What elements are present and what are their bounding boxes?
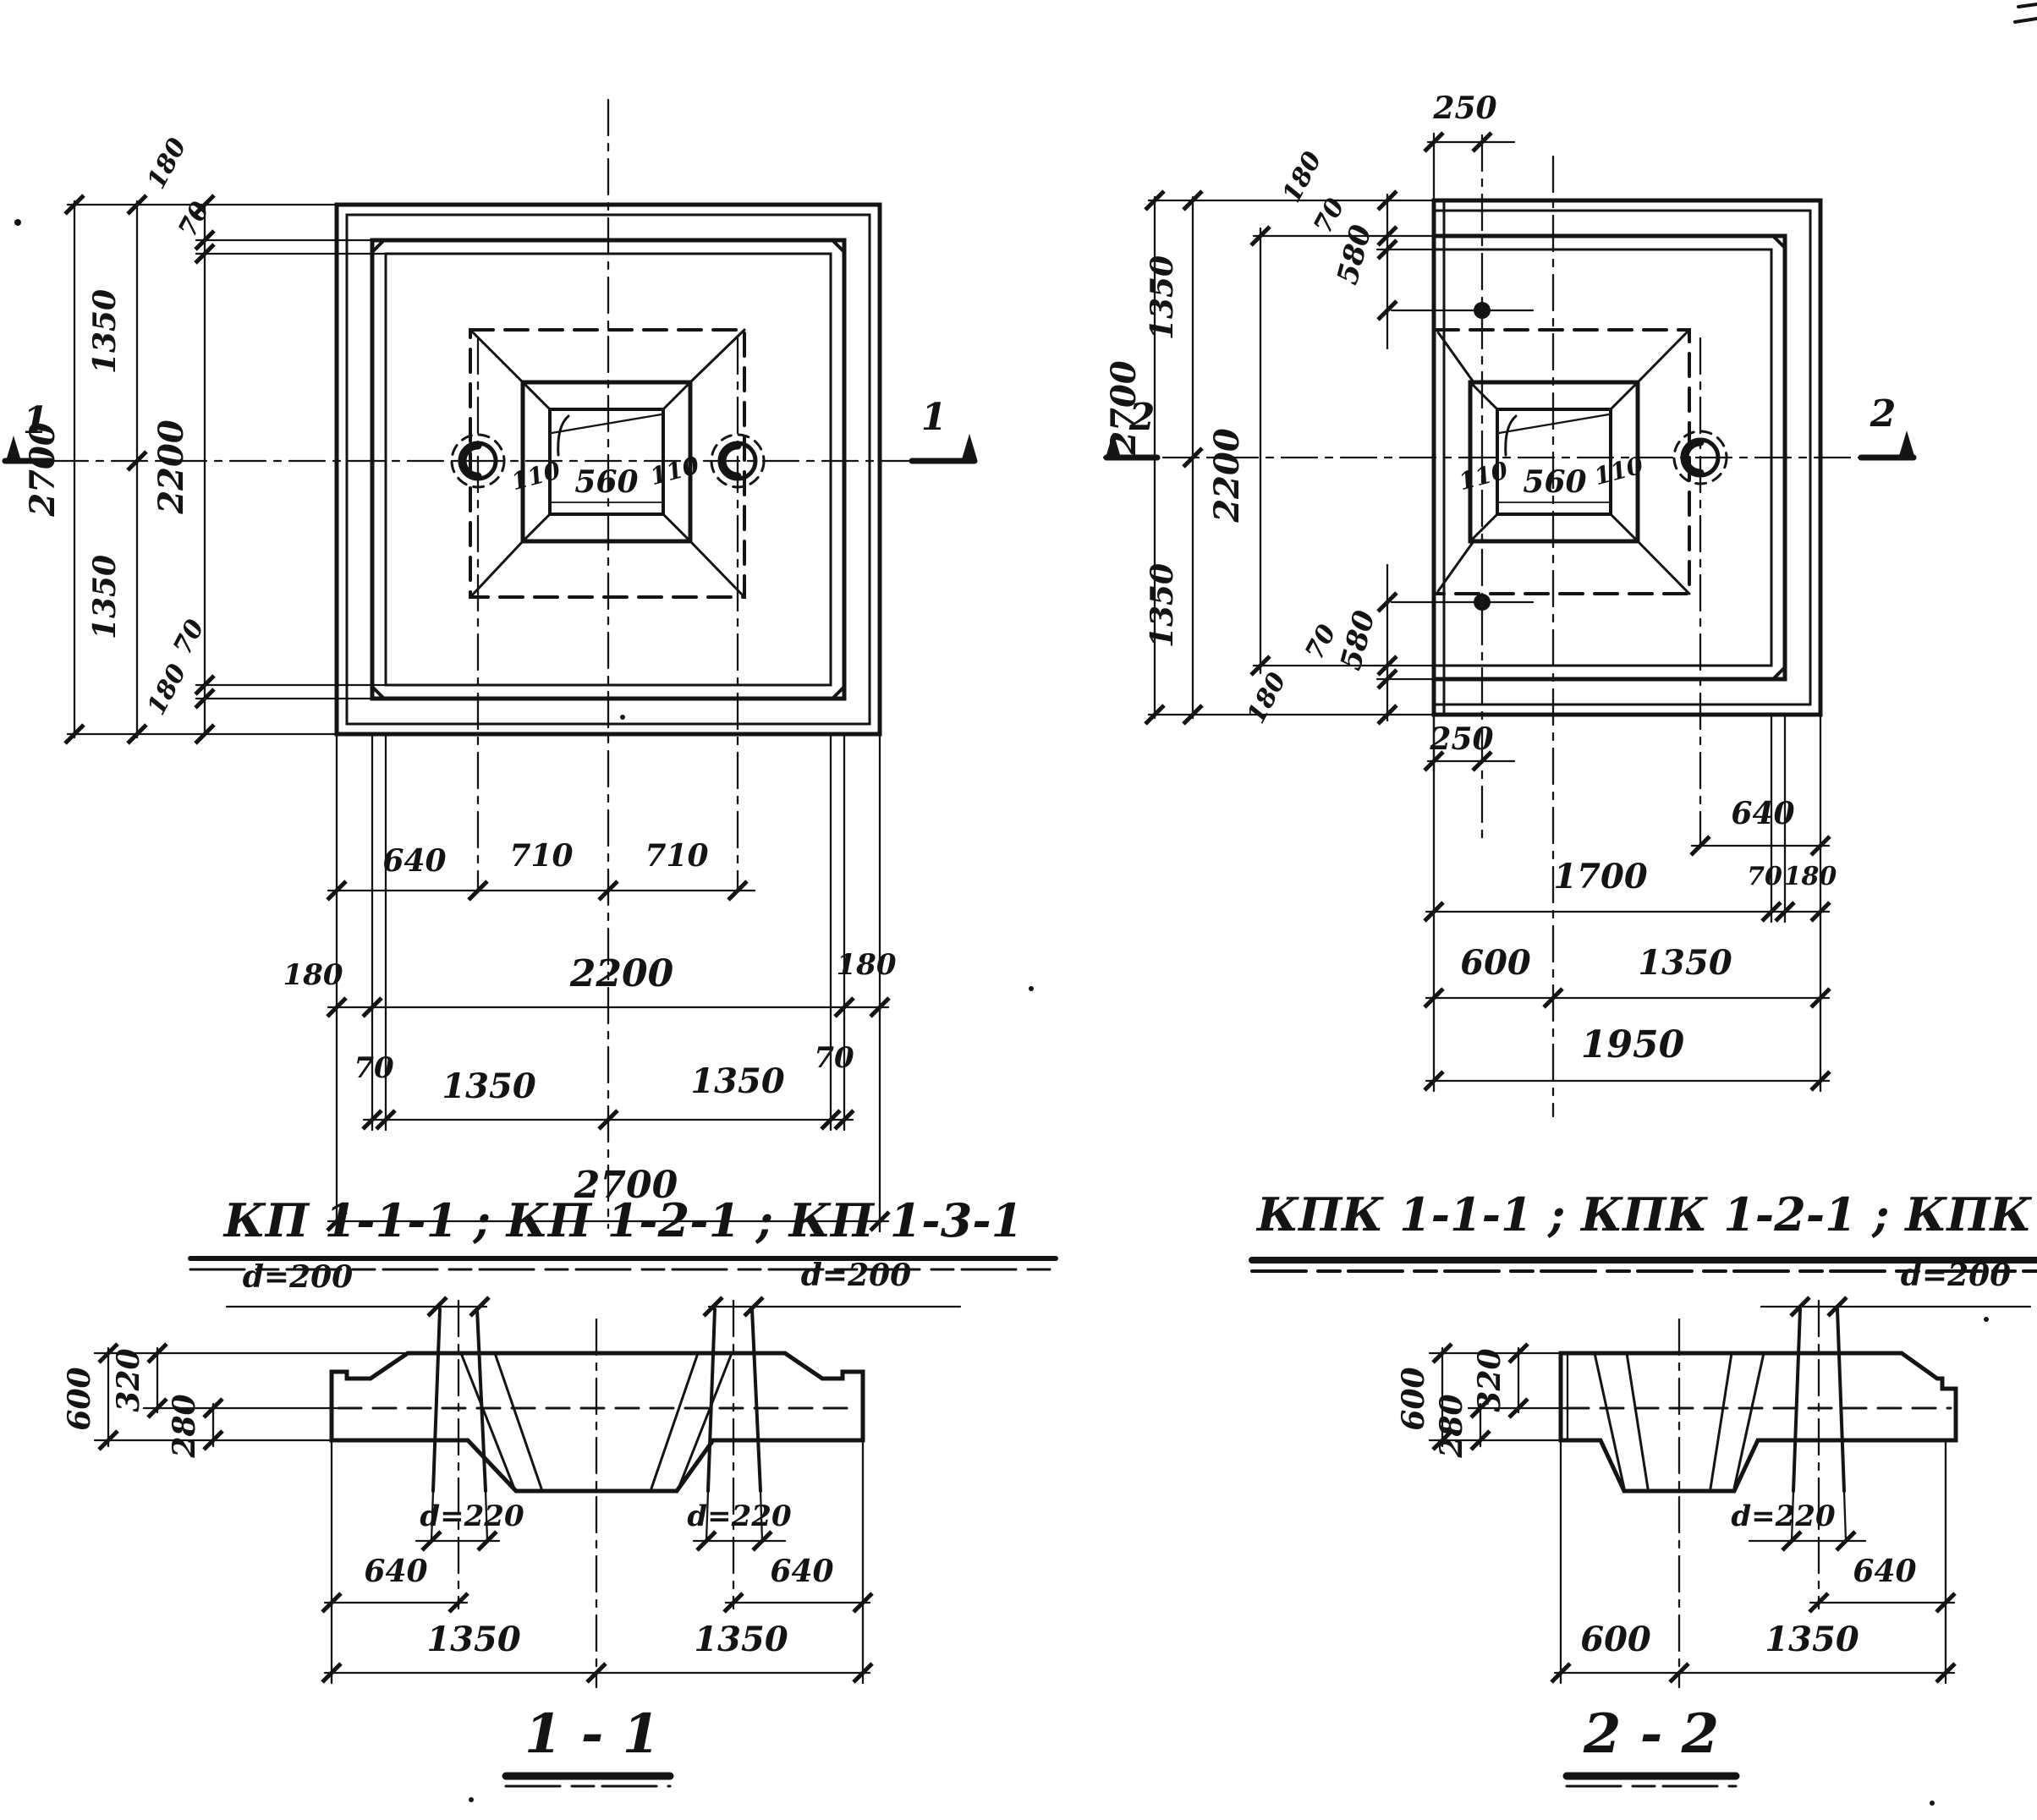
dim-inner-height: 2200	[151, 419, 191, 514]
section-title: 2 - 2	[1583, 1702, 1719, 1766]
section-marker-label: 2	[1870, 392, 1897, 436]
dim-hole-to-edge: 640	[1731, 796, 1794, 831]
pipe-top-dia-right: d=200	[801, 1258, 911, 1293]
dim-top-height: 320	[111, 1348, 146, 1412]
dim-bottom-height: 280	[167, 1394, 202, 1458]
dim-edge-l: 180	[283, 958, 343, 992]
dim-half-top: 1350	[1145, 255, 1180, 340]
section-marker-label: 2	[1128, 396, 1156, 439]
dim-edge: 180	[1784, 862, 1837, 891]
plan-kpk-dim-250-bottom: 250	[1425, 715, 1514, 771]
section-1-1-d200: d=200 d=200	[227, 1258, 960, 1316]
dim-socket-inner: 560	[574, 464, 638, 500]
section-2-2-dims-left: 600 320 280	[1396, 1344, 1566, 1459]
pipe-bottom-dia-left: d=220	[420, 1499, 524, 1533]
plan-kp-centerlines	[52, 100, 912, 1228]
dim-edge-to-hole: 640	[382, 843, 446, 879]
plan-kpk-dim-250-top: 250	[1425, 90, 1514, 200]
section-1-1-d220: d=220 d=220	[416, 1499, 792, 1550]
dim-socket-wall-right: 110	[647, 451, 702, 491]
dim-half: 1350	[1638, 943, 1732, 983]
pipe-top-dia-left: d=200	[243, 1259, 353, 1295]
scan-artifacts	[14, 4, 2037, 1806]
section-title: 1 - 1	[524, 1702, 660, 1766]
section-1-1-title: 1 - 1	[506, 1702, 670, 1786]
section-2-2-d200: d=200	[1761, 1258, 2030, 1316]
title-kp: КП 1-1-1 ; КП 1-2-1 ; КП 1-3-1	[222, 1193, 1024, 1247]
plan-kpk-anchor-top	[1392, 302, 1533, 319]
pipe-bottom-dia-right: d=220	[687, 1499, 792, 1533]
dim-hole-to-axis-l: 710	[509, 838, 573, 874]
dim-socket-wall-left: 110	[1456, 456, 1511, 496]
plan-kp-dims-left: 2700 1350 1350 2200 180 70 70 180	[23, 134, 386, 743]
section-marker-label: 1	[921, 396, 947, 439]
pipe-bottom-dia: d=220	[1731, 1499, 1836, 1533]
dim-inner-height: 2200	[1207, 428, 1247, 523]
section-1-1: d=200 d=200 600 320 280 d=220 d=220 640	[62, 1258, 960, 1786]
section-marker-1-right: 1	[912, 396, 977, 461]
dim-edge-to-pipe-l: 640	[364, 1554, 427, 1589]
titles: КП 1-1-1 ; КП 1-2-1 ; КП 1-3-1 КПК 1-1-1…	[190, 1187, 2037, 1271]
plan-kpk-dims-bottom: 640 1700 70 180 600 1350 1950	[1425, 715, 1837, 1091]
dim-anchor-offset-bottom: 250	[1429, 721, 1493, 757]
plan-kpk-hidden-edge	[1436, 330, 1689, 594]
plan-kp: 110 560 110 2700 1350 1350 2200 180 70 7…	[5, 100, 977, 1231]
dim-socket-inner: 560	[1523, 464, 1586, 500]
plan-kpk-anchor-bottom	[1392, 594, 1533, 611]
dim-half-r: 1350	[694, 1620, 788, 1659]
pipe-top-dia: d=200	[1901, 1258, 2011, 1293]
dim-edge-top: 180	[141, 134, 192, 195]
dim-edge-top: 180	[1277, 147, 1327, 208]
dim-axis-offset: 600	[1580, 1620, 1651, 1659]
dim-height: 600	[62, 1367, 97, 1430]
section-marker-2-right: 2	[1861, 392, 1914, 458]
dim-anchor-offset-top: 250	[1432, 90, 1496, 126]
dim-step: 70	[1747, 862, 1782, 891]
dim-edge-bottom: 180	[141, 660, 192, 721]
foundation-drawing: 110 560 110 2700 1350 1350 2200 180 70 7…	[0, 0, 2037, 1820]
dim-height: 600	[1396, 1367, 1431, 1430]
plan-kp-dims-bottom: 640 710 710 180 2200 180 70 1350 1350 70…	[283, 734, 897, 1231]
dim-step-l: 70	[354, 1051, 394, 1085]
section-marker-label: 1	[23, 399, 49, 442]
dim-half-r: 1350	[690, 1061, 784, 1101]
blueprint-sheet: 110 560 110 2700 1350 1350 2200 180 70 7…	[0, 0, 2037, 1820]
dim-top-height: 320	[1472, 1348, 1507, 1412]
section-2-2-dims-bottom: 640 600 1350	[1551, 1440, 1955, 1683]
dim-half-bottom: 1350	[1145, 563, 1180, 648]
dim-hole-to-axis-r: 710	[645, 838, 708, 874]
dim-half: 1350	[1765, 1620, 1859, 1659]
dim-overall-width: 1950	[1581, 1023, 1685, 1066]
dim-half-l: 1350	[426, 1620, 520, 1659]
dim-step-r: 70	[814, 1041, 854, 1075]
dim-inner-width: 1700	[1553, 857, 1647, 896]
section-2-2: d=200 600 320 280 d=220 640 600 1350 2 -…	[1396, 1258, 2030, 1786]
dim-edge-to-pipe: 640	[1853, 1554, 1916, 1589]
dim-half-l: 1350	[442, 1066, 535, 1106]
title-kpk: КПК 1-1-1 ; КПК 1-2-1 ; КПК 1-3-1	[1255, 1187, 2037, 1242]
plan-kpk: 110 560 110 2700 1350 1350 2200 180 70 5…	[1104, 90, 1914, 1116]
dim-anchor-bottom: 580	[1334, 606, 1382, 673]
section-2-2-title: 2 - 2	[1567, 1702, 1736, 1786]
dim-bottom-height: 280	[1434, 1394, 1469, 1458]
dim-socket-wall-left: 110	[508, 456, 563, 496]
dim-edge-to-pipe-r: 640	[770, 1554, 833, 1589]
dim-edge-bottom: 180	[1241, 668, 1292, 729]
dim-half-top: 1350	[87, 289, 123, 374]
dim-edge-r: 180	[837, 948, 897, 982]
dim-axis-offset: 600	[1460, 943, 1531, 983]
dim-inner-width: 2200	[569, 952, 674, 995]
dim-half-bottom: 1350	[87, 555, 123, 639]
